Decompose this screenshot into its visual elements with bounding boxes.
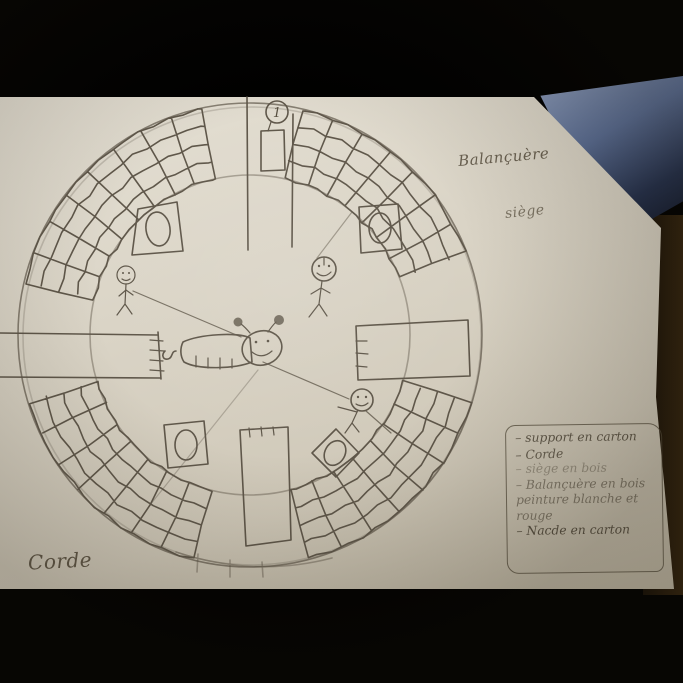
bottom-platform: [240, 427, 291, 546]
net-panel: [29, 382, 212, 558]
legend-item: – Nacde en carton: [516, 522, 658, 539]
right-platform: [356, 320, 470, 380]
sketch-svg: 1: [0, 0, 683, 683]
legend-box: – support en carton – Corde – siège en b…: [505, 423, 664, 574]
net-panel: [26, 109, 215, 300]
net-panel: [291, 380, 472, 557]
antenna-tip-left: [234, 318, 243, 327]
stick-figure-left: [117, 266, 135, 315]
caterpillar-creature: [163, 315, 286, 370]
legend-item: – Balançuère en bois peinture blanche et…: [516, 475, 659, 523]
photo-frame: 1: [0, 0, 683, 683]
antenna-tip-right: [274, 315, 284, 325]
stick-figure-bottom-right: [338, 389, 373, 433]
seat-square-top-left: [132, 202, 183, 255]
label-corde: Corde: [27, 547, 92, 574]
balloon-number: 1: [273, 106, 281, 121]
top-platform: [261, 130, 285, 171]
net-panels: [26, 109, 472, 558]
seat-square-top-right: [359, 204, 402, 253]
stick-figure-center: [309, 257, 336, 317]
